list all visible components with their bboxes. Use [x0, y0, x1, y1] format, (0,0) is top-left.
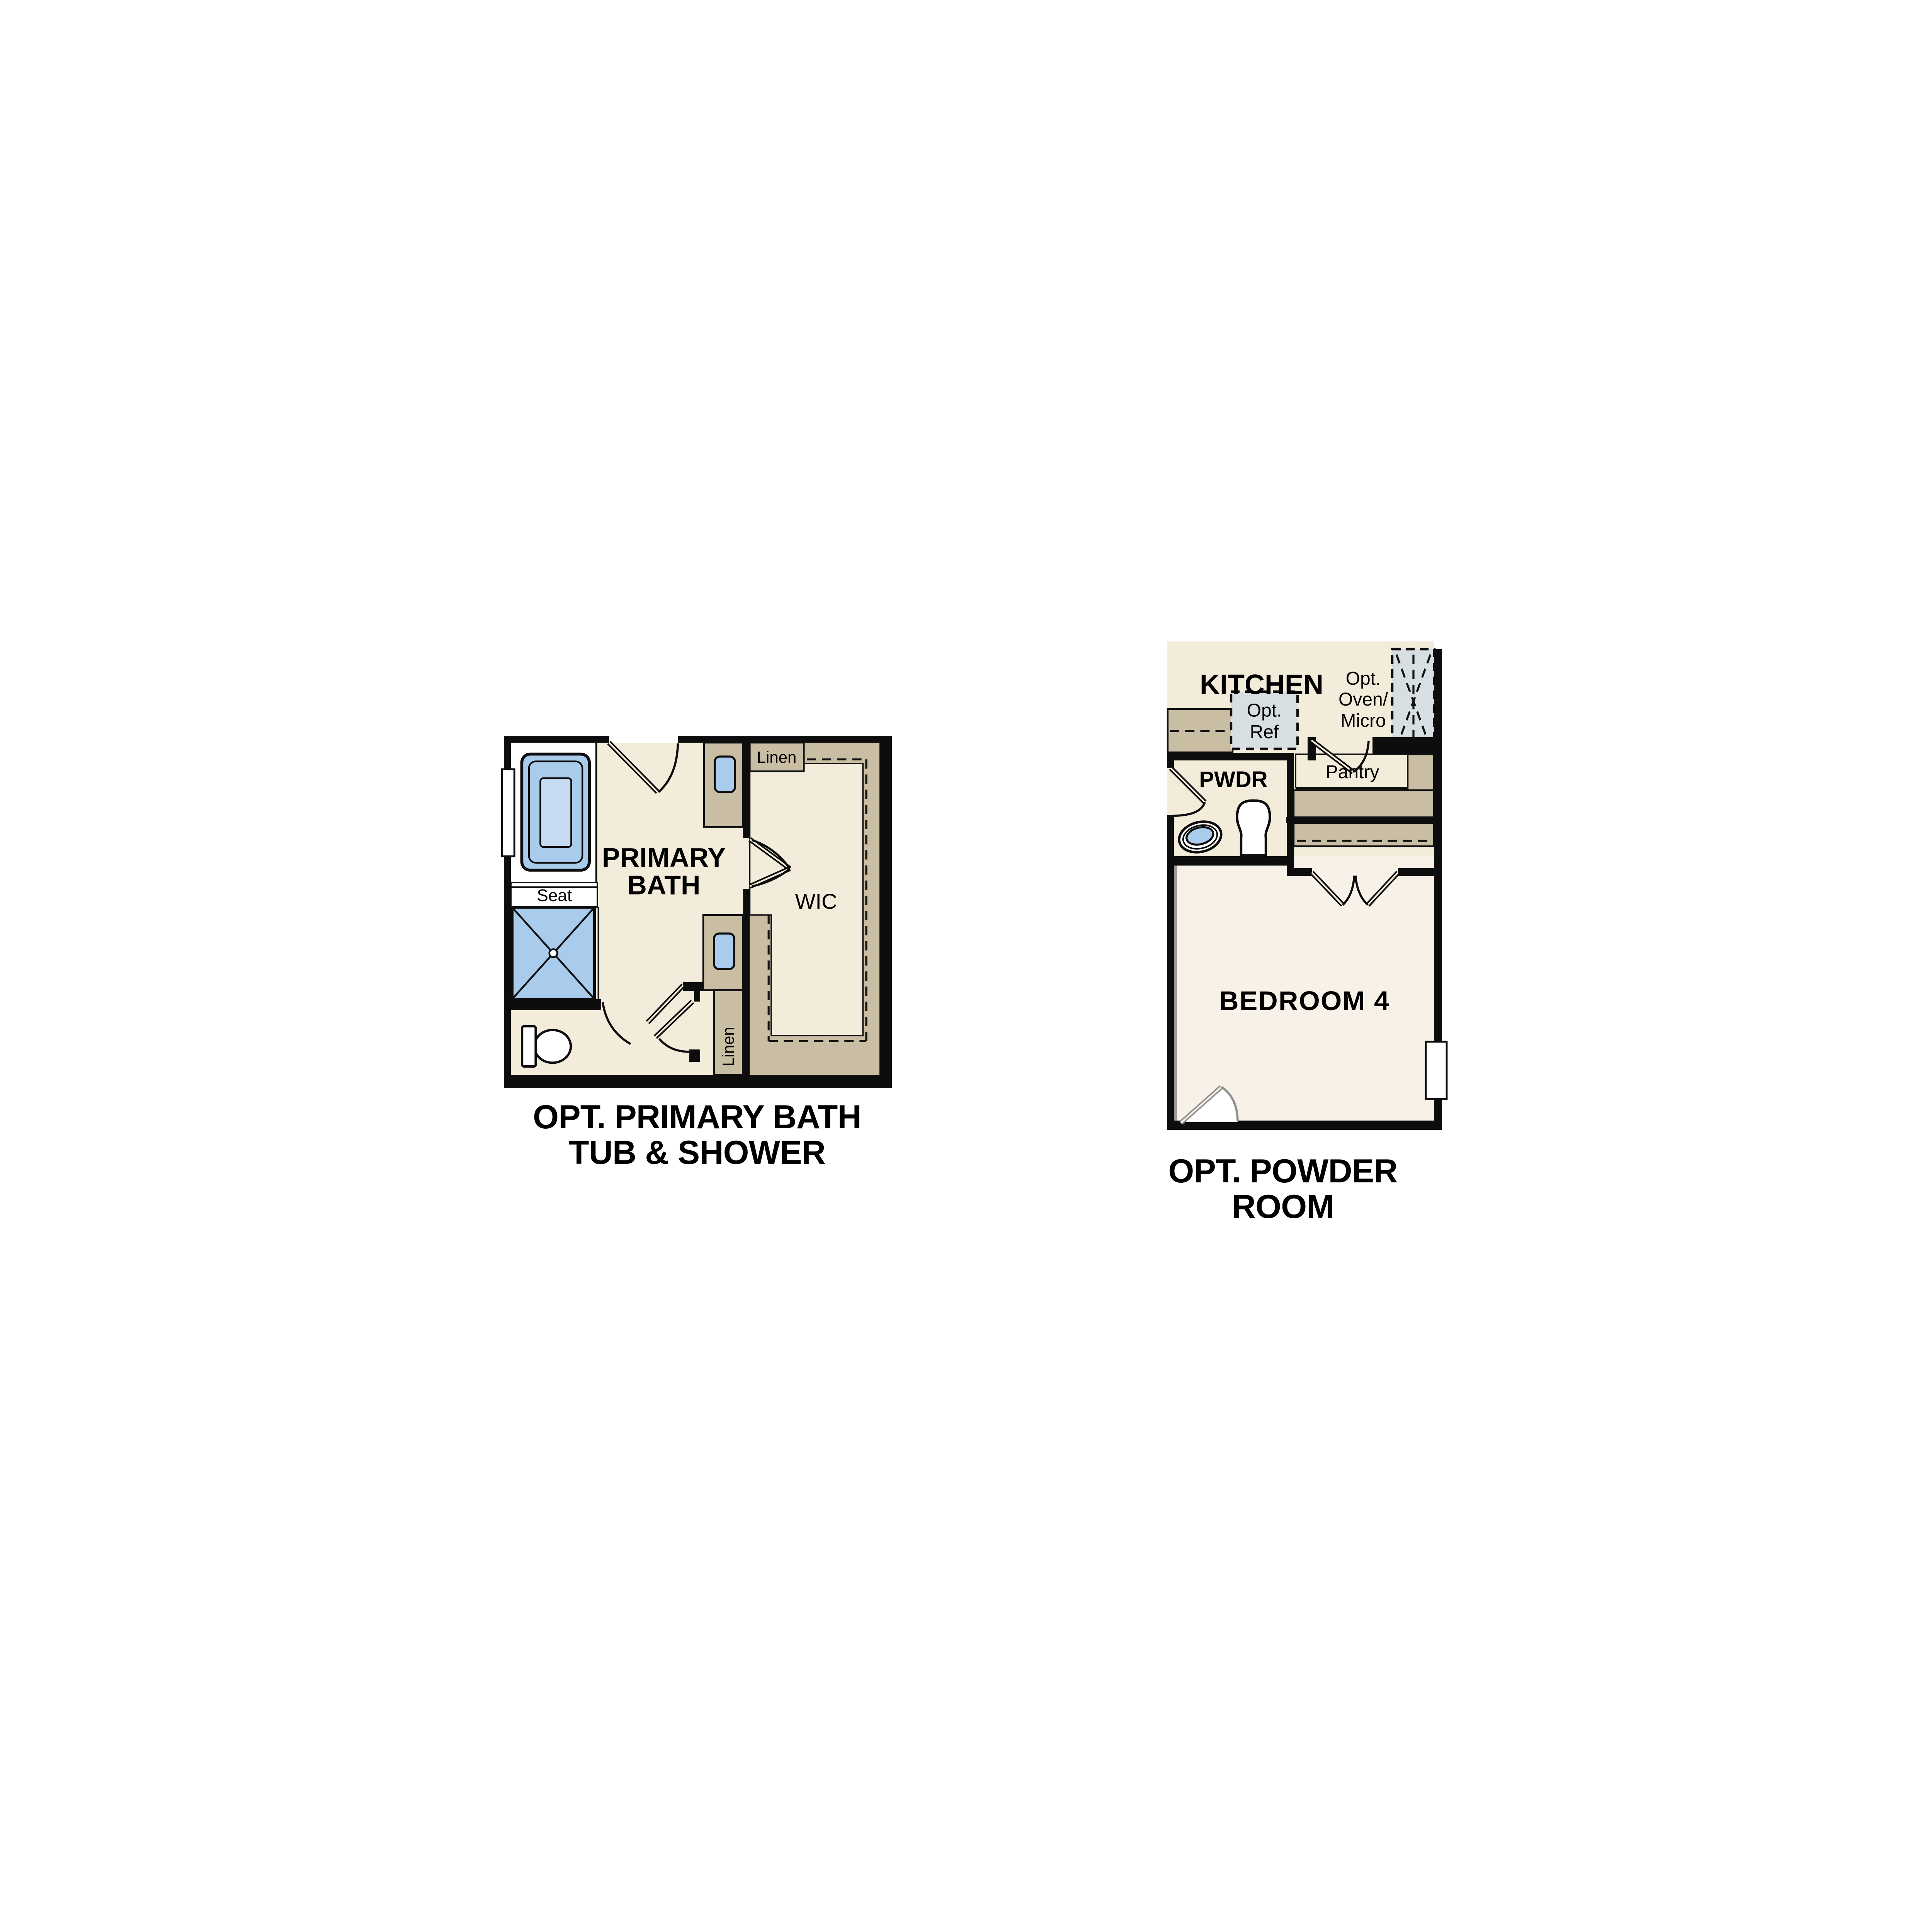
bedroom-left-wall-line	[1173, 866, 1176, 1121]
caption-line: OPT. POWDER	[1168, 1155, 1397, 1190]
seat-label: Seat	[537, 886, 572, 905]
opt-oven-label-line1: Opt.	[1345, 668, 1380, 689]
pantry-shelf-right	[1407, 754, 1433, 791]
pantry-shelf-bottom	[1293, 790, 1433, 817]
powder-toilet	[1236, 801, 1269, 855]
bedroom-closet-shelf	[1293, 823, 1433, 846]
toilet	[522, 1026, 571, 1066]
opt-ref-label-line2: Ref	[1249, 722, 1278, 742]
bathtub	[522, 754, 589, 870]
primary-bath-label-line2: BATH	[627, 870, 700, 900]
caption-line: TUB & SHOWER	[533, 1136, 861, 1172]
bedroom-label: BEDROOM 4	[1218, 986, 1389, 1016]
caption-line: OPT. PRIMARY BATH	[533, 1100, 861, 1136]
sink-bottom	[714, 934, 734, 969]
primary-bath-floorplan: PRIMARY BATH WIC Seat Linen Linen	[504, 736, 892, 1088]
kitchen-label: KITCHEN	[1199, 669, 1323, 700]
opt-oven-label-line2: Oven/	[1338, 689, 1388, 710]
pwdr-label: PWDR	[1198, 767, 1267, 792]
opt-oven-label-line3: Micro	[1340, 711, 1385, 731]
linen-bottom-label: Linen	[719, 1027, 737, 1066]
caption-line: ROOM	[1168, 1190, 1397, 1226]
shower-drain	[549, 949, 558, 957]
powder-room-floorplan: KITCHEN Opt. Oven/ Micro Opt. Ref Pantry…	[1166, 641, 1441, 1130]
shower	[512, 907, 599, 999]
linen-top-label: Linen	[757, 748, 797, 766]
wic-label: WIC	[795, 889, 837, 913]
primary-bath-label-line1: PRIMARY	[602, 842, 726, 872]
window	[1425, 1042, 1446, 1099]
sink-top	[715, 757, 735, 792]
options-sheet-page: PRIMARY BATH WIC Seat Linen Linen OPT. P…	[0, 0, 1932, 1932]
powder-room-caption: OPT. POWDER ROOM	[1168, 1155, 1397, 1226]
window	[502, 769, 514, 856]
pantry-label: Pantry	[1325, 762, 1379, 782]
primary-bath-caption: OPT. PRIMARY BATH TUB & SHOWER	[533, 1100, 861, 1172]
opt-ref-label-line1: Opt.	[1246, 700, 1281, 721]
